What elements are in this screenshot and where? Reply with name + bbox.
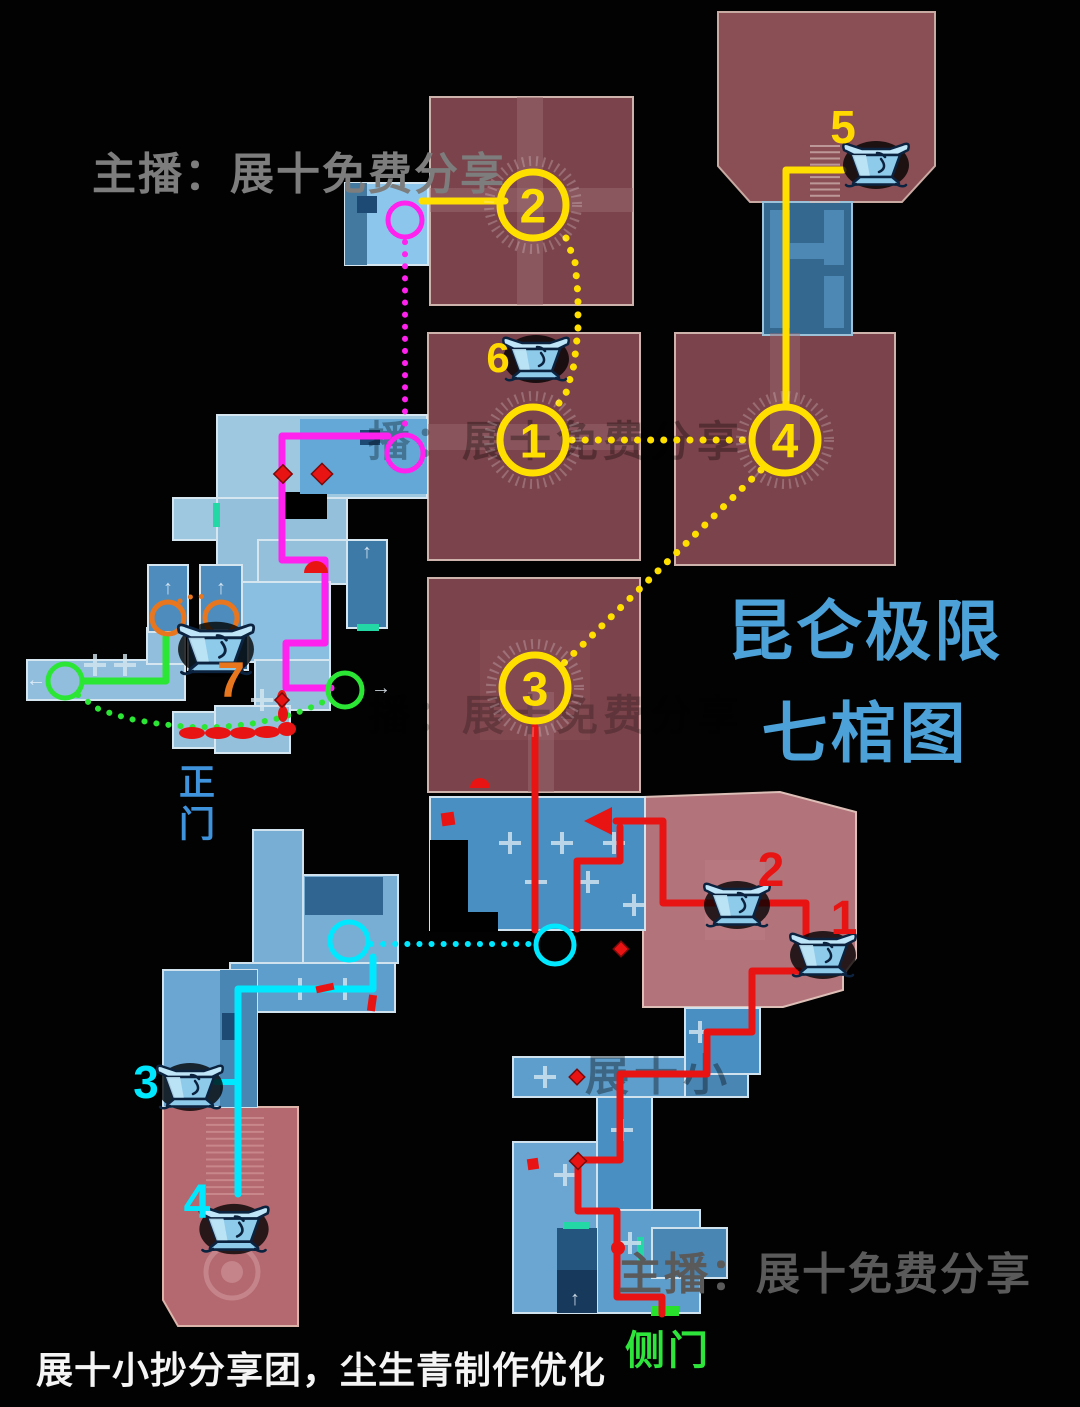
chest-number-label: 4: [184, 1176, 211, 1229]
map-cutout: [466, 912, 498, 932]
direction-arrow-icon: ↑: [362, 541, 372, 563]
chest-number-label: 3: [133, 1056, 159, 1108]
route-dash-red: [254, 726, 280, 738]
floor-target-dot: [221, 1261, 243, 1283]
chest-number-label: 1: [831, 892, 858, 945]
chest-number-label: 5: [830, 101, 856, 153]
room-detail: [824, 276, 844, 328]
route-marker-circle-cyan: [536, 926, 574, 964]
map-cutout: [430, 840, 468, 932]
route-dash-red: [278, 722, 296, 736]
direction-arrow-icon: ↑: [163, 577, 173, 599]
game-map-screenshot: 播：展十免费分享播：展十免费分享展十小21435672134↑↑↑←→↑ 主播：…: [0, 0, 1080, 1407]
red-square-marker: [527, 1158, 539, 1170]
room-detail: [305, 877, 383, 915]
door-marker: [357, 624, 379, 631]
waypoint-number: 4: [772, 416, 799, 469]
map-cutout: [283, 492, 327, 519]
map-title-line1: 昆仑极限: [700, 578, 1030, 674]
credit-line: 展十小抄分享团，尘生青制作优化: [36, 1340, 606, 1394]
map-title-line2: 七棺图: [700, 680, 1030, 776]
map-room: [597, 1097, 652, 1210]
door-marker: [213, 503, 220, 527]
direction-arrow-icon: ↑: [216, 577, 226, 599]
coffin-chest-icon-6: [503, 335, 569, 383]
direction-arrow-icon: ←: [26, 669, 46, 691]
chest-number-label: 2: [758, 844, 785, 897]
direction-arrow-icon: ↑: [570, 1288, 580, 1310]
red-square-marker: [441, 812, 456, 827]
streamer-watermark-top: 主播：展十免费分享: [92, 138, 506, 202]
door-marker: [563, 1222, 589, 1229]
main-gate-label: 正门: [168, 763, 220, 847]
room-detail: [788, 243, 826, 259]
chest-number-label: 7: [217, 652, 245, 708]
waypoint-number: 3: [522, 664, 549, 717]
room-detail: [824, 210, 844, 265]
waypoint-number: 2: [520, 181, 547, 234]
coffin-chest-icon-3: [157, 1063, 223, 1111]
side-gate-label: 侧门: [625, 1318, 711, 1376]
chest-number-label: 6: [486, 334, 509, 381]
route-dash-red: [278, 706, 288, 722]
red-diamond-marker: [613, 941, 629, 957]
route-dash-red: [179, 727, 205, 739]
waypoint-number: 1: [520, 416, 547, 469]
map-room: [253, 830, 303, 963]
direction-arrow-icon: →: [371, 677, 391, 699]
route-dash-red: [230, 727, 256, 739]
route-dash-red: [205, 727, 231, 739]
streamer-watermark-bottom: 主播：展十免费分享: [618, 1238, 1032, 1302]
